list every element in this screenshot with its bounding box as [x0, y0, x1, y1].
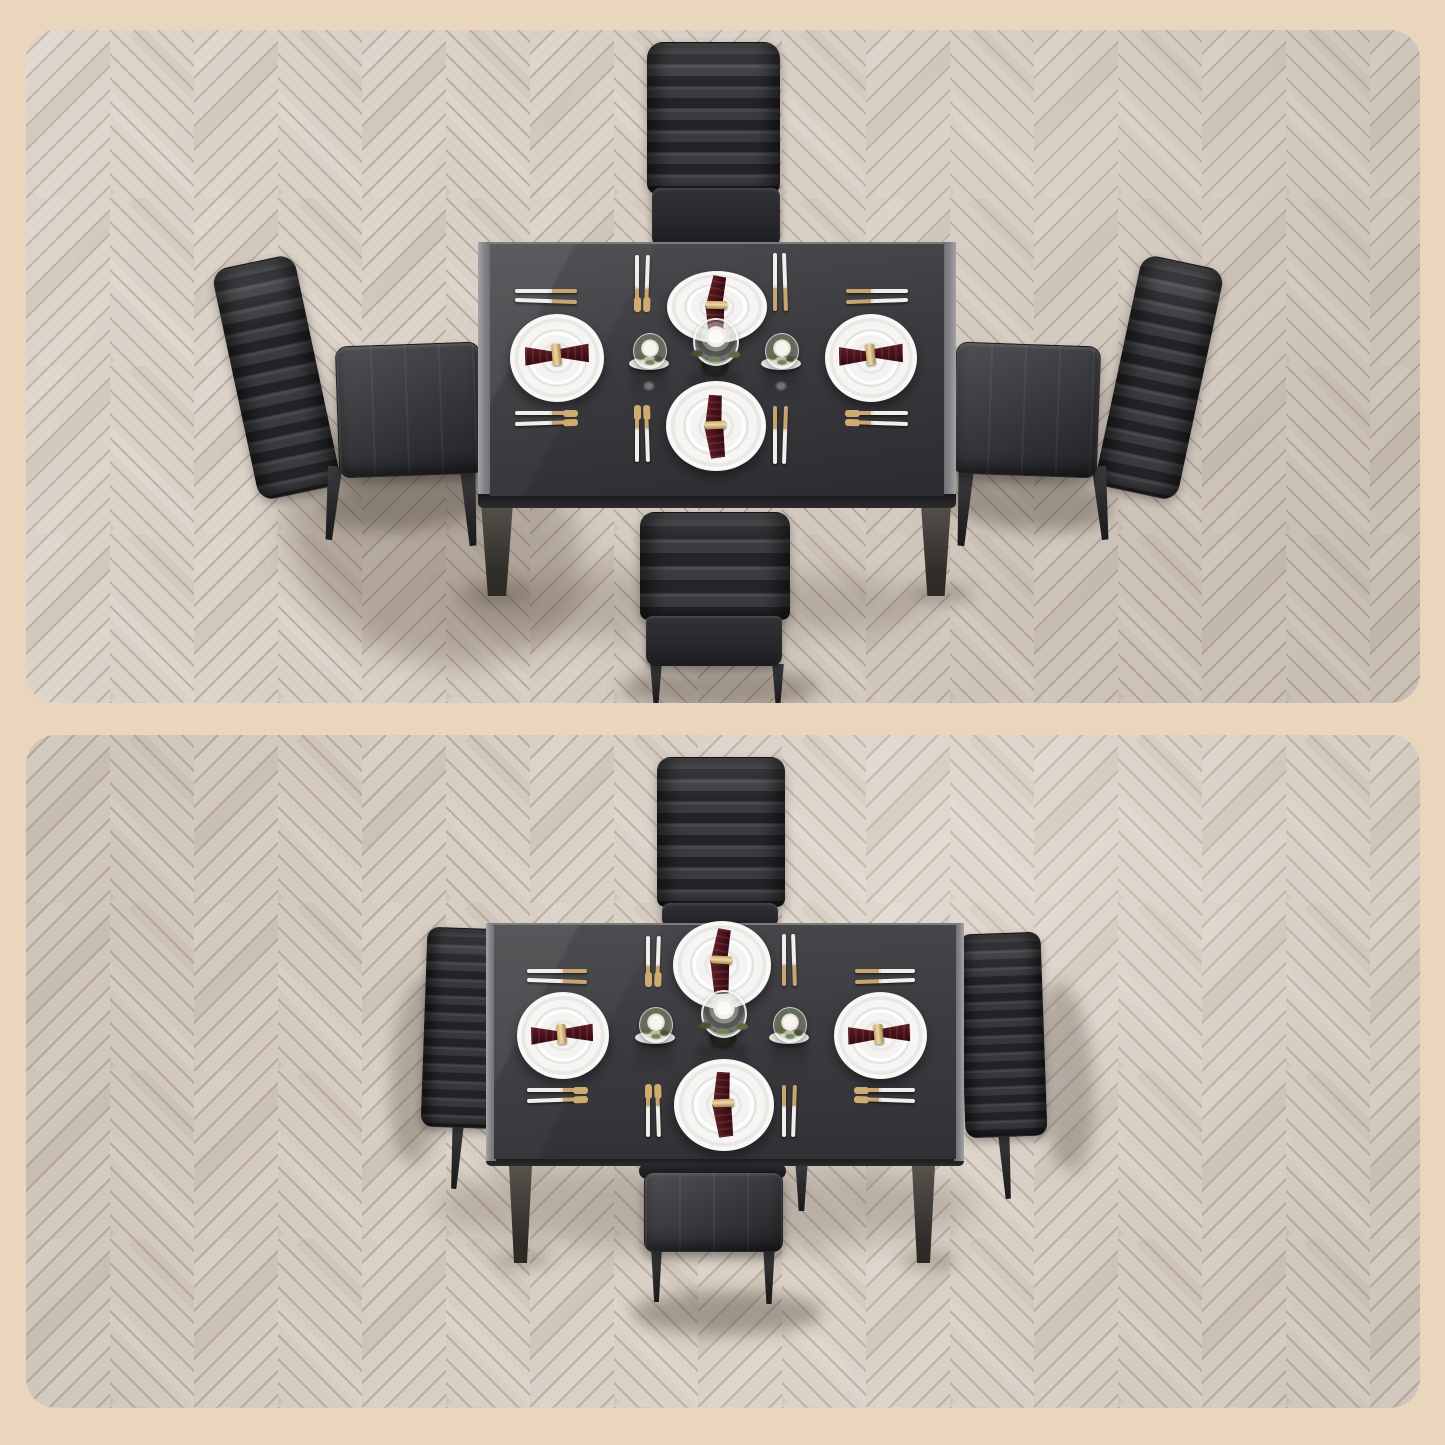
knife [855, 969, 915, 973]
chair-south-back [640, 512, 790, 620]
fork [515, 411, 577, 415]
votive-candle [765, 333, 799, 369]
chair-north-back [657, 757, 785, 907]
hurricane-candle [701, 990, 747, 1038]
fork [635, 406, 639, 462]
plate-east [825, 314, 917, 402]
knife [846, 289, 908, 293]
knife [527, 969, 587, 973]
fork [527, 1088, 587, 1092]
chair-east-back [958, 932, 1047, 1139]
chair-shadow [632, 1291, 822, 1335]
chair-south-seat [644, 1172, 783, 1252]
panel-overhead-view [26, 735, 1420, 1408]
knife [782, 934, 786, 986]
fork [635, 255, 639, 311]
table-foot-shadow [464, 586, 528, 602]
glass-reflection [637, 1043, 673, 1085]
table-foot-shadow [494, 1253, 552, 1267]
fork [655, 936, 661, 986]
chair-west-seat [335, 342, 485, 479]
votive-candle [773, 1007, 807, 1043]
plate-south [666, 381, 766, 471]
glass-reflection [776, 382, 786, 390]
table-edge-right [942, 242, 956, 494]
panel-angled-top-view [26, 30, 1420, 703]
knife [773, 406, 777, 464]
votive-candle [639, 1007, 673, 1043]
table-foot-shadow [908, 586, 972, 602]
plate-south [674, 1059, 774, 1151]
knife [782, 1085, 786, 1137]
chair-north-seat [652, 188, 780, 246]
plate-west [517, 992, 609, 1079]
chair-south-seat [646, 616, 782, 666]
chair-east-seat [952, 342, 1102, 479]
plate-east [834, 992, 927, 1079]
fork [846, 411, 908, 415]
table-foot-shadow [900, 1253, 958, 1267]
hurricane-candle [693, 318, 739, 366]
glass-reflection [644, 382, 654, 390]
fork [655, 1085, 661, 1137]
glass-reflection [763, 368, 799, 412]
plate-west [510, 314, 604, 402]
fork [646, 1085, 650, 1137]
knife [773, 253, 777, 311]
fork [855, 1088, 915, 1092]
chair-north-back [647, 42, 780, 194]
votive-candle [633, 333, 667, 369]
product-photo [0, 0, 1445, 1445]
knife [515, 289, 577, 293]
fork [646, 936, 650, 986]
glass-reflection [771, 1043, 807, 1085]
